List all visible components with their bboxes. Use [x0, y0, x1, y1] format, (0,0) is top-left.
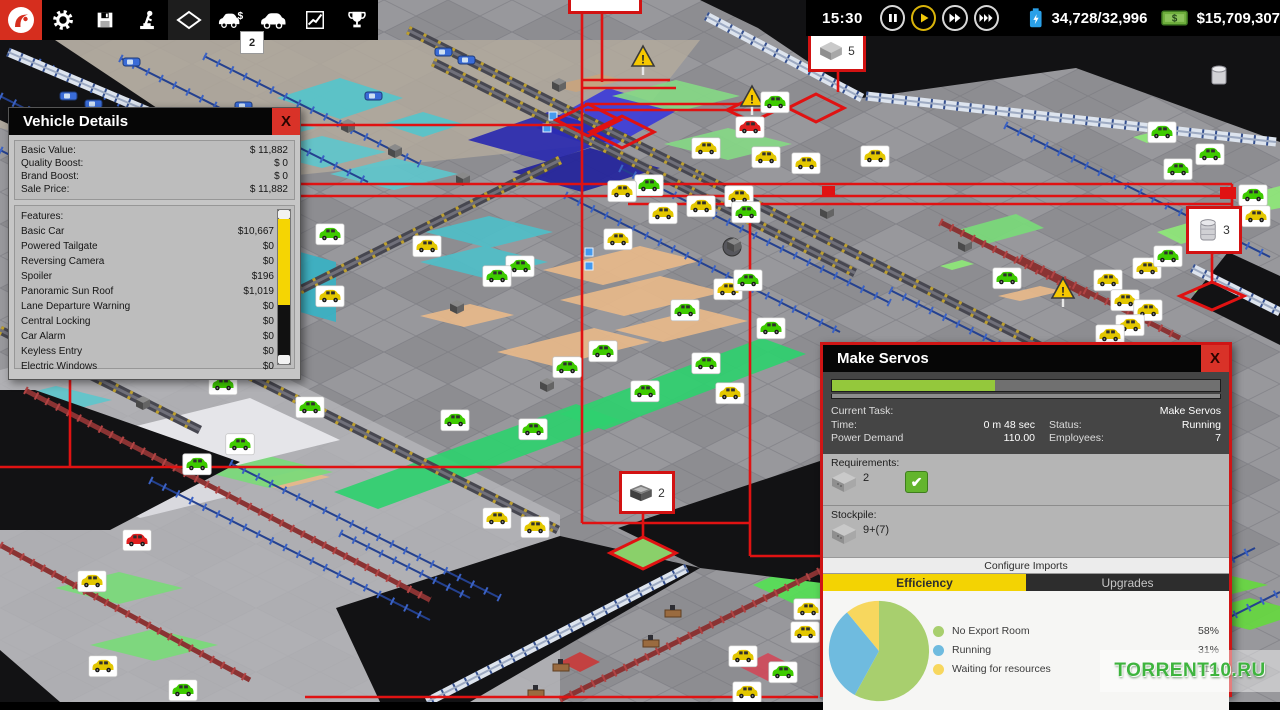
vehicle-badge[interactable]: [752, 147, 781, 168]
vehicle-badge[interactable]: [1239, 185, 1268, 206]
requirements-label: Requirements:: [831, 457, 1221, 469]
vehicle-details-header[interactable]: Vehicle Details X: [9, 108, 300, 135]
make-servos-panel: Make Servos X Current Task: Make Servos …: [820, 342, 1232, 697]
vehicle-badge[interactable]: [631, 381, 660, 402]
stockpile-section: Stockpile: 9+(7): [823, 506, 1229, 557]
svg-text:$: $: [237, 11, 243, 22]
vehicle-badge[interactable]: [413, 236, 442, 257]
achievements-button[interactable]: [336, 0, 378, 40]
vehicle-badge[interactable]: [733, 682, 762, 702]
legend-row: No Export Room58%: [933, 622, 1219, 641]
route-node: [822, 186, 835, 196]
vehicle-badge[interactable]: [1148, 122, 1177, 143]
machine-icon: [629, 484, 653, 502]
current-task-label: Current Task:: [831, 405, 941, 419]
vehicle-badge[interactable]: [716, 383, 745, 404]
settings-button[interactable]: [42, 0, 84, 40]
fastest-forward-icon: [979, 13, 994, 23]
vehicle-badge[interactable]: [757, 318, 786, 339]
power-demand-label: Power Demand: [831, 432, 917, 446]
vehicle-badge[interactable]: [589, 341, 618, 362]
vehicle-badge[interactable]: [1242, 206, 1271, 227]
vehicle-badge[interactable]: [226, 434, 255, 455]
car-sprite: [458, 56, 475, 64]
close-button[interactable]: X: [272, 108, 300, 135]
cash-balance: $15,709,307: [1197, 10, 1280, 27]
vehicle-badge[interactable]: [1154, 246, 1183, 267]
vehicle-badge[interactable]: [732, 202, 761, 223]
vehicle-badge[interactable]: [78, 571, 107, 592]
vehicle-features-section: Features: Basic Car$10,667Powered Tailga…: [14, 205, 295, 369]
stat-row: Basic Value:$ 11,882: [21, 144, 288, 157]
vehicle-badge[interactable]: [734, 270, 763, 291]
vehicle-details-panel: Vehicle Details X Basic Value:$ 11,882Qu…: [8, 107, 301, 380]
money-icon: $: [1161, 9, 1188, 27]
servo-crate-icon: [831, 471, 857, 493]
vehicle-badge[interactable]: [441, 410, 470, 431]
vehicle-badge[interactable]: [671, 300, 700, 321]
tab-efficiency[interactable]: Efficiency: [823, 574, 1026, 591]
machine-count-badge[interactable]: 2: [619, 471, 675, 514]
vehicle-badge[interactable]: [791, 622, 820, 643]
features-label: Features:: [21, 209, 274, 224]
fast-forward-button[interactable]: [942, 5, 967, 31]
requirement-met-checkbox[interactable]: ✔: [905, 471, 928, 493]
efficiency-pie-chart: [825, 597, 933, 705]
play-button[interactable]: [911, 5, 936, 31]
watermark-text: TORRENT10.RU: [1114, 660, 1265, 682]
progress-fill: [832, 380, 995, 391]
microscope-icon: [136, 9, 158, 31]
car-sprite: [123, 58, 140, 66]
vehicle-badge[interactable]: [316, 224, 345, 245]
stat-row: Brand Boost:$ 0: [21, 170, 288, 183]
play-icon: [919, 13, 929, 23]
legend-dot: [933, 664, 944, 675]
servo-crate-icon: [831, 523, 857, 545]
research-button[interactable]: [126, 0, 168, 40]
vehicle-badge[interactable]: [993, 268, 1022, 289]
current-task-value: Make Servos: [941, 405, 1221, 419]
vehicle-badge[interactable]: [861, 146, 890, 167]
feature-row: Powered Tailgate$0: [21, 239, 274, 254]
conveyor-marker: [585, 262, 593, 270]
offscreen-badge[interactable]: [568, 0, 642, 14]
feature-row: Car Alarm$0: [21, 329, 274, 344]
employees-label: Employees:: [1035, 432, 1141, 446]
barrel-count-badge[interactable]: 3: [1186, 206, 1242, 254]
chart-icon: [304, 9, 326, 31]
stockpile-label: Stockpile:: [831, 509, 1221, 521]
car-sprite: [435, 48, 452, 56]
svg-text:!: !: [1061, 285, 1065, 299]
vehicle-badge[interactable]: [761, 92, 790, 113]
logo-icon: [6, 5, 36, 35]
panel-title: Make Servos: [823, 350, 929, 367]
car-icon: [259, 9, 287, 31]
vehicle-badge[interactable]: [316, 286, 345, 307]
feature-row: Basic Car$10,667: [21, 224, 274, 239]
panel-title: Vehicle Details: [9, 113, 128, 130]
vehicle-badge[interactable]: [794, 599, 823, 620]
vehicle-badge[interactable]: [519, 419, 548, 440]
vehicle-badge[interactable]: [1196, 144, 1225, 165]
stat-row: Quality Boost:$ 0: [21, 157, 288, 170]
feature-row: Central Locking$0: [21, 314, 274, 329]
legend-dot: [933, 626, 944, 637]
svg-text:!: !: [750, 93, 754, 107]
clock: 15:30: [822, 10, 863, 27]
task-status-section: Current Task: Make Servos Time: 0 m 48 s…: [823, 372, 1229, 454]
legend-dot: [933, 645, 944, 656]
pause-button[interactable]: [880, 5, 905, 31]
vehicle-badge[interactable]: [608, 181, 637, 202]
vehicle-badge[interactable]: [89, 656, 118, 677]
employees-value: 7: [1141, 432, 1221, 446]
car-sprite: [60, 92, 77, 100]
vehicle-badge[interactable]: [604, 229, 633, 250]
feature-row: Lane Departure Warning$0: [21, 299, 274, 314]
save-icon: [94, 9, 116, 31]
power-icon: [1028, 7, 1043, 29]
showroom-count-badge: 2: [240, 31, 264, 54]
tab-upgrades[interactable]: Upgrades: [1026, 574, 1229, 591]
feature-row: Electric Windows$0: [21, 359, 274, 374]
barrel-count: 3: [1223, 223, 1230, 237]
svg-text:$: $: [1172, 13, 1178, 24]
watermark: TORRENT10.RU: [1100, 650, 1280, 692]
vehicle-badge[interactable]: [1164, 159, 1193, 180]
barrel-icon: [1198, 217, 1218, 243]
crate-count-badge[interactable]: 5: [808, 30, 866, 72]
crate-icon: [819, 41, 843, 61]
gear-icon: [51, 8, 75, 32]
vehicle-badge[interactable]: [123, 530, 152, 551]
stockpile-count: 9+(7): [863, 524, 889, 536]
diamond-icon: [176, 9, 202, 31]
status-label: Status:: [1035, 419, 1141, 433]
svg-text:!: !: [641, 53, 645, 67]
feature-row: Reversing Camera$0: [21, 254, 274, 269]
power-demand-value: 110.00: [917, 432, 1035, 446]
configure-imports-button[interactable]: Configure Imports: [823, 557, 1229, 574]
requirement-count: 2: [863, 472, 869, 484]
pause-icon: [888, 13, 898, 23]
vehicle-badge[interactable]: [649, 203, 678, 224]
trophy-icon: [346, 9, 368, 31]
vehicle-badge[interactable]: [692, 353, 721, 374]
task-progress-bar: [831, 379, 1221, 392]
power-usage: 34,728/32,996: [1052, 10, 1148, 27]
vehicle-badge[interactable]: [483, 508, 512, 529]
vehicle-badge[interactable]: [769, 662, 798, 683]
stat-row: Sale Price:$ 11,882: [21, 183, 288, 196]
feature-row: Panoramic Sun Roof$1,019: [21, 284, 274, 299]
features-scrollbar[interactable]: [277, 209, 291, 365]
fastest-forward-button[interactable]: [974, 5, 999, 31]
secondary-progress-bar: [831, 394, 1221, 399]
scrollbar-thumb-bottom[interactable]: [278, 355, 290, 364]
vehicle-stats-section: Basic Value:$ 11,882Quality Boost:$ 0Bra…: [14, 140, 295, 200]
vehicle-badge[interactable]: [553, 357, 582, 378]
app-logo[interactable]: [0, 0, 42, 40]
scrollbar-thumb-top[interactable]: [278, 210, 290, 219]
feature-row: Spoiler$196: [21, 269, 274, 284]
stats-button[interactable]: [294, 0, 336, 40]
make-servos-header[interactable]: Make Servos X: [823, 345, 1229, 372]
route-node: [1220, 187, 1236, 199]
vehicle-badge[interactable]: [792, 153, 821, 174]
barrel: [1212, 66, 1226, 84]
requirements-section: Requirements: 2 ✔: [823, 454, 1229, 503]
status-value: Running: [1141, 419, 1221, 433]
time-value: 0 m 48 sec: [917, 419, 1035, 433]
scrollbar-track-filled: [278, 219, 290, 305]
conveyor-marker: [585, 248, 593, 256]
main-toolbar: $: [0, 0, 378, 40]
feature-row: Keyless Entry$0: [21, 344, 274, 359]
fast-forward-icon: [949, 13, 961, 23]
vehicle-badge[interactable]: [521, 517, 550, 538]
vehicle-badge[interactable]: [736, 117, 765, 138]
vehicle-badge[interactable]: [1094, 270, 1123, 291]
status-toolbar: 15:30 34,728/32,996 $ $15,709,307: [806, 0, 1280, 36]
vehicle-badge[interactable]: [687, 196, 716, 217]
machine-count: 2: [658, 486, 665, 500]
vehicle-badge[interactable]: [635, 175, 664, 196]
time-label: Time:: [831, 419, 917, 433]
close-button[interactable]: X: [1201, 345, 1229, 372]
crate-count: 5: [848, 44, 855, 58]
vehicle-badge[interactable]: [183, 454, 212, 475]
vehicle-badge[interactable]: [169, 680, 198, 701]
car-sale-icon: $: [218, 9, 244, 31]
vehicle-badge[interactable]: [692, 138, 721, 159]
car-sprite: [365, 92, 382, 100]
vehicle-badge[interactable]: [729, 646, 758, 667]
save-button[interactable]: [84, 0, 126, 40]
vehicle-badge[interactable]: [483, 266, 512, 287]
view-mode-button[interactable]: [168, 0, 210, 40]
panel-tabs: Efficiency Upgrades: [823, 574, 1229, 591]
vehicle-badge[interactable]: [296, 397, 325, 418]
